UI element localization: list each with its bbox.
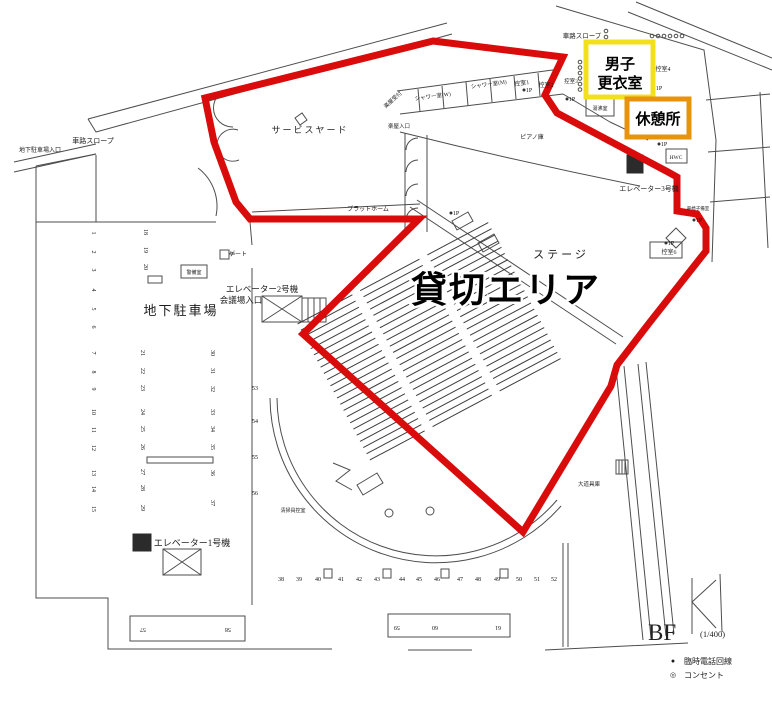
waiting6-label: 控室6 bbox=[661, 248, 676, 256]
parking-number: 3 bbox=[90, 269, 96, 272]
props-storage-label: 大道具庫 bbox=[578, 480, 601, 488]
stall-block bbox=[388, 614, 510, 637]
parking-number: 42 bbox=[356, 577, 362, 583]
kettle-room-label: 湯沸室 bbox=[592, 105, 607, 112]
parking-number: 50 bbox=[516, 577, 522, 583]
parking-number: 1 bbox=[90, 232, 96, 235]
parking-number: 47 bbox=[457, 577, 463, 583]
parking-number: 52 bbox=[551, 577, 557, 583]
parking-number: 10 bbox=[90, 409, 96, 415]
hatch-line bbox=[618, 237, 632, 245]
elevator1-label: エレベーター1号機 bbox=[154, 537, 231, 548]
parking-number: 36 bbox=[209, 470, 215, 476]
terrace-hatch bbox=[608, 222, 664, 299]
floorplan-canvas: 1234567891011121314151819202122232425262… bbox=[0, 0, 772, 703]
hook-circle bbox=[604, 35, 608, 39]
hatch-line bbox=[569, 150, 574, 163]
piano-room-label: ピアノ庫 bbox=[520, 133, 543, 141]
parking-number: 35 bbox=[209, 444, 215, 450]
parking-number: 40 bbox=[315, 577, 321, 583]
pillar bbox=[441, 569, 449, 578]
security-room-label: 警備室 bbox=[186, 269, 201, 276]
pillar bbox=[383, 569, 391, 578]
parking-number: 43 bbox=[374, 577, 380, 583]
mens-changing-room-label-line1: 男子 bbox=[605, 55, 635, 73]
hook-circle bbox=[578, 60, 582, 64]
waiting4-label: 控室4 bbox=[655, 65, 670, 73]
parking-number: 15 bbox=[90, 506, 96, 512]
hook-circle bbox=[680, 34, 684, 38]
shower-m-label: シャワー室(M) bbox=[470, 78, 507, 91]
pillar bbox=[500, 569, 508, 578]
power-marker-label: 1P bbox=[696, 218, 703, 224]
service-yard-label: サービスヤード bbox=[271, 125, 348, 135]
parking-number: 28 bbox=[139, 485, 145, 491]
parking-number: 46 bbox=[434, 577, 440, 583]
hatch-line bbox=[613, 230, 627, 238]
platform-edge bbox=[252, 204, 420, 212]
power-marker-label: 1P bbox=[569, 97, 576, 103]
parking-number: 59 bbox=[394, 624, 400, 630]
ramp-label-top: 車路スロープ bbox=[563, 31, 602, 40]
hatch-line bbox=[623, 245, 637, 253]
hatch-line bbox=[603, 163, 608, 176]
parking-number: 53 bbox=[252, 386, 258, 392]
seating-rows bbox=[295, 217, 566, 470]
auditorium-bowl bbox=[270, 398, 561, 563]
hatch-line bbox=[647, 283, 661, 291]
legend-outlet-symbol: ◎ bbox=[670, 671, 676, 679]
parking-number: 57 bbox=[140, 626, 146, 632]
elevator1-shaft bbox=[133, 534, 151, 551]
parking-number: 7 bbox=[90, 352, 96, 355]
parking-number: 5 bbox=[90, 308, 96, 311]
hook-circle bbox=[578, 66, 582, 70]
pillar bbox=[324, 569, 332, 578]
hatch-line bbox=[611, 166, 616, 179]
service-yard-square bbox=[295, 113, 307, 125]
hook-circle bbox=[578, 82, 582, 86]
parking-number: 30 bbox=[209, 350, 215, 356]
parking-number: 11 bbox=[90, 427, 96, 433]
parking-number: 18 bbox=[142, 229, 148, 235]
parking-number: 51 bbox=[534, 577, 540, 583]
hatch-line bbox=[632, 260, 646, 268]
hwc-label: HWC bbox=[670, 155, 683, 161]
parking-number: 58 bbox=[225, 626, 231, 632]
platform-label: プラットホーム bbox=[347, 206, 389, 213]
parking-number: 41 bbox=[338, 577, 344, 583]
parking-number: 29 bbox=[139, 505, 145, 511]
parking-number: 27 bbox=[139, 469, 145, 475]
hatch-line bbox=[586, 156, 591, 169]
floor-circle bbox=[385, 509, 393, 517]
parking-number: 44 bbox=[399, 577, 405, 583]
floor-circle bbox=[426, 507, 434, 515]
drive-curve bbox=[198, 168, 217, 216]
power-marker-label: 1P bbox=[661, 142, 668, 148]
hook-circle bbox=[578, 88, 582, 92]
ramp-label-left: 車路スロープ bbox=[72, 136, 114, 145]
floor-title: BF bbox=[648, 620, 676, 645]
legend-outlet-label: コンセント bbox=[684, 671, 724, 680]
elevator1-stairs bbox=[163, 549, 201, 575]
hatch-line bbox=[594, 160, 599, 173]
wheelchair-room-label: 車椅子備室 bbox=[687, 205, 710, 212]
parking-number: 39 bbox=[296, 577, 302, 583]
hook-circle bbox=[674, 34, 678, 38]
hook-circle bbox=[668, 34, 672, 38]
power-marker-label: 1P bbox=[453, 211, 460, 217]
hatch-line bbox=[608, 222, 622, 230]
parking-area-label: 地下駐車場 bbox=[143, 303, 218, 318]
parking-number: 56 bbox=[252, 491, 258, 497]
parking-number: 20 bbox=[142, 264, 148, 270]
parking-number: 23 bbox=[139, 385, 145, 391]
parking-number: 25 bbox=[139, 426, 145, 432]
hatch-line bbox=[561, 147, 566, 160]
garage-entrance-label: 地下駐車場入口 bbox=[19, 146, 61, 154]
hatch-line bbox=[642, 275, 656, 283]
parking-number: 4 bbox=[90, 289, 96, 292]
parking-number: 55 bbox=[252, 455, 258, 461]
hook-circle bbox=[662, 34, 666, 38]
parking-number: 33 bbox=[209, 409, 215, 415]
parking-number: 61 bbox=[495, 624, 501, 630]
right-corridors bbox=[616, 362, 674, 640]
legend-phone-label: 臨時電話回線 bbox=[684, 656, 732, 666]
rental-area-label: 貸切エリア bbox=[411, 270, 601, 311]
parking-number: 21 bbox=[139, 350, 145, 356]
hatch-line bbox=[651, 291, 665, 299]
shower-w-label: シャワー室(W) bbox=[414, 90, 451, 103]
parking-number: 32 bbox=[209, 386, 215, 392]
parking-number: 45 bbox=[416, 577, 422, 583]
parking-number: 13 bbox=[90, 470, 96, 476]
hook-circle bbox=[604, 29, 608, 33]
dressing-reception-label: 楽屋受付 bbox=[382, 89, 404, 110]
waiting3-label: 控室3 bbox=[564, 77, 578, 85]
parking-number: 19 bbox=[142, 247, 148, 253]
parking-number: 31 bbox=[209, 368, 215, 374]
hook-circle bbox=[578, 77, 582, 81]
hatch-line bbox=[552, 144, 557, 157]
parking-number: 2 bbox=[90, 251, 96, 254]
hook-circle bbox=[578, 71, 582, 75]
stage-label: ステージ bbox=[533, 249, 589, 261]
parking-number: 37 bbox=[209, 500, 215, 506]
gate-label: ゲート bbox=[229, 250, 247, 258]
power-marker-label: 1P bbox=[526, 88, 533, 94]
hatch-line bbox=[628, 253, 642, 261]
power-marker-label: 1P bbox=[668, 241, 675, 247]
parking-number: 8 bbox=[90, 371, 96, 374]
cleaning-room-label: 清掃員控室 bbox=[280, 507, 305, 514]
parking-number: 48 bbox=[475, 577, 481, 583]
parking-number: 24 bbox=[139, 409, 145, 415]
hall-entrance-label: 会議場入口 bbox=[220, 295, 263, 305]
hatch-line bbox=[544, 141, 549, 154]
elevator3-label: エレベーター3号機 bbox=[619, 184, 679, 193]
parking-number: 49 bbox=[494, 577, 500, 583]
bottom-right-structures bbox=[545, 543, 722, 650]
dressing-entrance-label: 楽屋入口 bbox=[388, 122, 410, 130]
parking-number: 12 bbox=[90, 445, 96, 451]
hatch-line bbox=[637, 268, 651, 276]
waiting1-label: 控室1 bbox=[514, 78, 530, 88]
elevator2-label: エレベーター2号機 bbox=[226, 284, 299, 294]
parking-number: 38 bbox=[278, 577, 284, 583]
parking-number: 34 bbox=[209, 426, 215, 432]
mens-changing-room-label-line2: 更衣室 bbox=[597, 74, 642, 92]
scale-label: (1/400) bbox=[700, 629, 725, 639]
parking-number: 26 bbox=[139, 444, 145, 450]
parking-number: 60 bbox=[432, 624, 438, 630]
rest-area-label: 休憩所 bbox=[634, 110, 680, 128]
hatch-line bbox=[577, 153, 582, 166]
parking-number: 54 bbox=[252, 419, 258, 425]
legend-phone-symbol: ● bbox=[671, 657, 675, 665]
parking-number: 6 bbox=[90, 326, 96, 329]
power-marker-label: 1P bbox=[656, 86, 663, 92]
waiting2-label: 控室2 bbox=[538, 81, 553, 89]
parking-number: 22 bbox=[139, 368, 145, 374]
parking-number: 14 bbox=[90, 486, 96, 492]
parking-number: 9 bbox=[90, 388, 96, 391]
